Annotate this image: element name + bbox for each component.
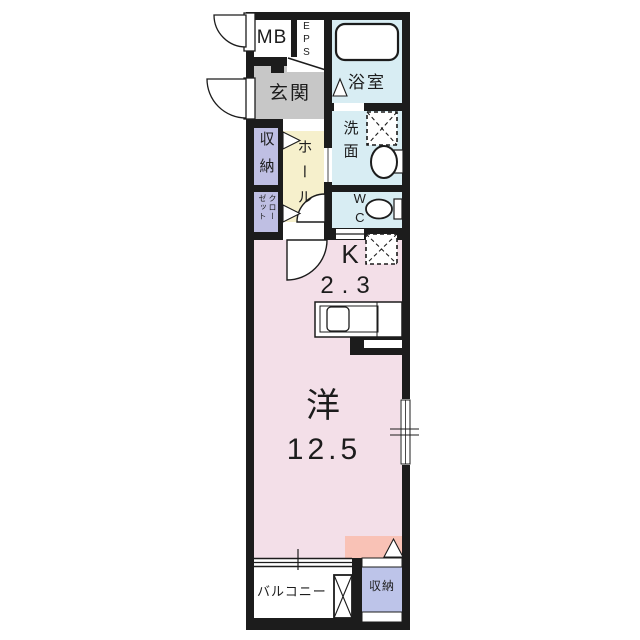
mb-door-swing-arc: [214, 15, 246, 47]
kitchen-label: K: [330, 240, 370, 269]
wall-right: [402, 12, 410, 630]
entrance-label: 玄関: [258, 84, 322, 105]
bath-door-opening: [334, 103, 364, 111]
storage-upper-label: 収納: [257, 131, 274, 185]
toilet-icon: [366, 200, 392, 219]
wall-below-closet: [246, 232, 287, 240]
closet-label: クローゼット: [255, 194, 277, 226]
wall-bottom: [246, 622, 410, 630]
bathtub-icon: [336, 24, 398, 60]
refrigerator-space-icon: [366, 234, 397, 264]
storage-lower-door-top: [362, 558, 402, 567]
storage-lower-label: 収納: [362, 580, 402, 593]
washroom-label: 洗面: [341, 120, 358, 166]
wall-stub-entry: [271, 57, 284, 73]
hall-label: ホール: [295, 139, 312, 214]
eps-label: EPS: [301, 21, 312, 59]
kitchen-counter-icon: [315, 302, 402, 337]
washing-machine-space-icon: [367, 112, 397, 145]
bath-label: 浴室: [336, 74, 398, 93]
wall-top: [246, 12, 410, 20]
wall-washroom-wc: [332, 185, 402, 192]
storage-lower-door-bottom: [362, 612, 402, 622]
western-room-label: 洋: [303, 388, 343, 425]
wall-closet-hall: [278, 119, 283, 240]
sink-icon: [371, 146, 397, 178]
washer-pan-icon: [334, 575, 352, 618]
floor-plan: MB EPS 浴室 玄関 収納 クローゼット ホール 洗面 WC K 2.3 洋…: [0, 0, 640, 640]
toilet-tank: [394, 199, 402, 219]
entrance-step: [283, 119, 324, 131]
kitchen-stub-slit: [364, 340, 402, 348]
hall-kitchen-threshold: [283, 222, 324, 240]
kitchen-sink-icon: [327, 307, 349, 331]
balcony-label: バルコニー: [257, 585, 327, 599]
entrance-door-swing-arc: [207, 79, 246, 118]
kitchen-size: 2.3: [316, 273, 382, 299]
wall-storage-closet: [254, 185, 278, 192]
wall-balcony-storage: [352, 558, 362, 630]
western-room-size: 12.5: [274, 433, 374, 466]
mb-label: MB: [250, 28, 294, 49]
wc-label: WC: [352, 191, 366, 229]
wall-entrance-bottom: [246, 119, 283, 128]
